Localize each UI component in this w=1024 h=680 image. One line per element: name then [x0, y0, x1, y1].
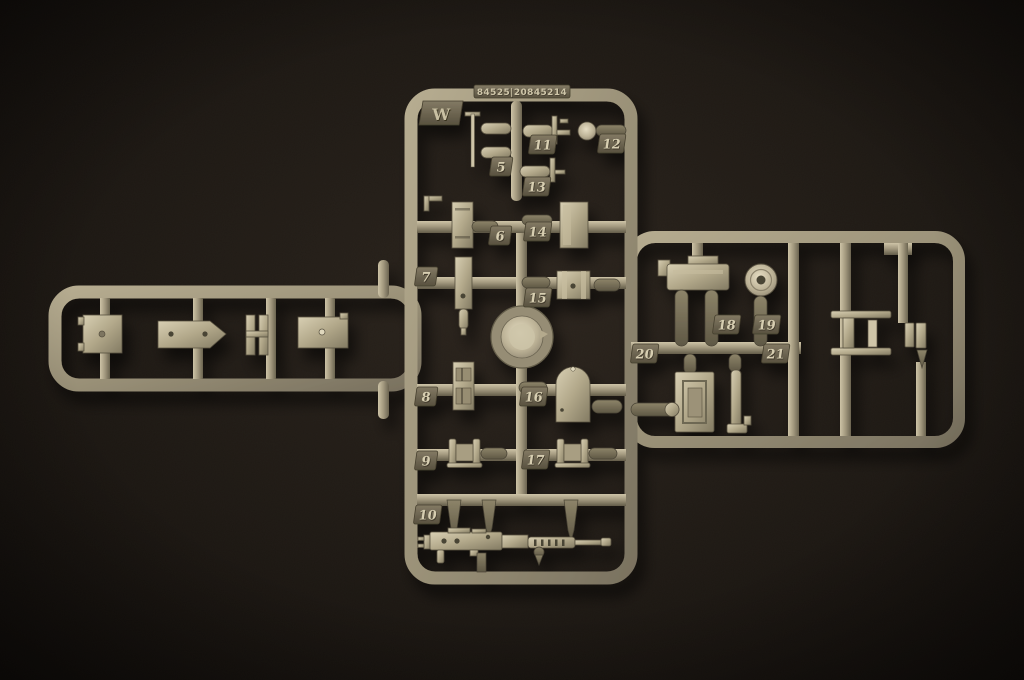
vignette — [0, 0, 1024, 680]
sprue-photo: 84525|20845214 84525|20845214 W W — [0, 0, 1024, 680]
photo-stage: 84525|20845214 84525|20845214 W W — [0, 0, 1024, 680]
